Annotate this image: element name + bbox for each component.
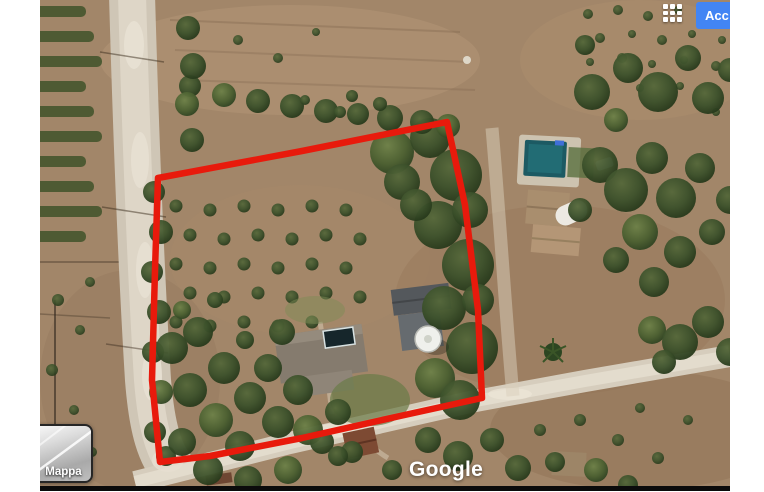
grid-dot [663,11,668,16]
right-letterbox [730,0,764,492]
grid-dot [670,11,675,16]
apps-grid-icon[interactable] [663,4,682,22]
google-watermark[interactable]: Google [409,458,483,482]
grid-dot [677,4,682,9]
screenshot-stage: Google Acc Mappa [0,0,764,492]
grid-dot [677,11,682,16]
grid-dot [670,17,675,22]
grid-dot [677,17,682,22]
grid-dot [663,17,668,22]
left-letterbox [0,0,40,492]
grid-dot [670,4,675,9]
map-canvas[interactable]: Google [40,0,730,492]
satellite-imagery [40,0,730,492]
grid-dot [663,4,668,9]
